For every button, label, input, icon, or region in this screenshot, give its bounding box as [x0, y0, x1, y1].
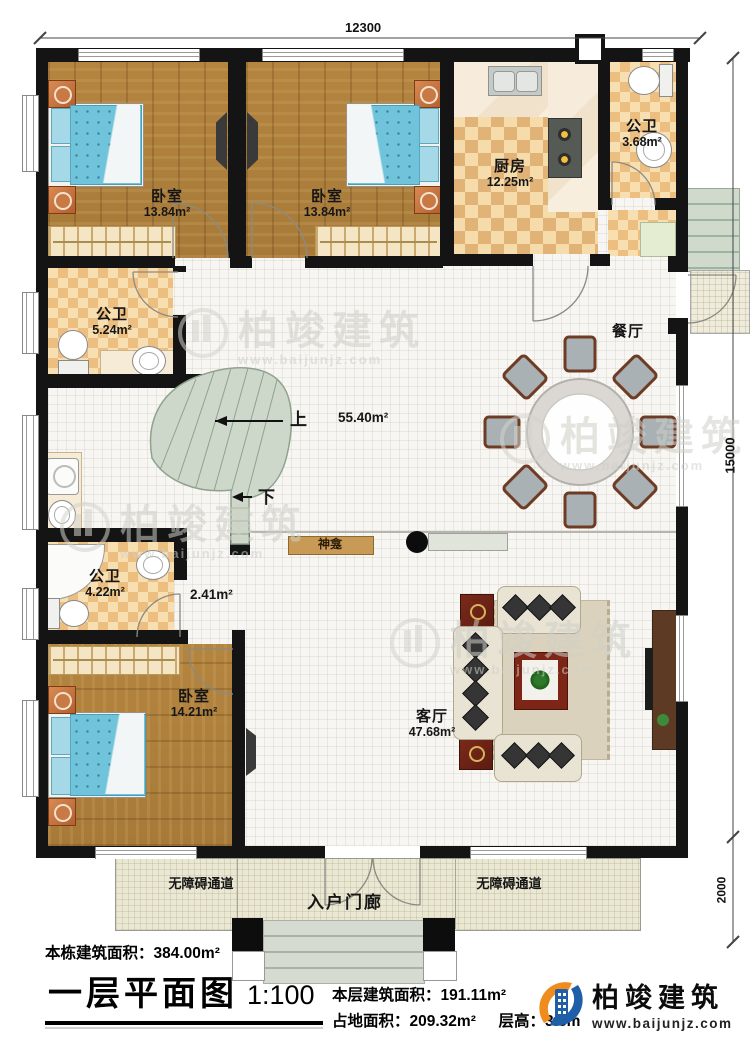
- wall: [668, 318, 688, 334]
- bay-window: [22, 588, 39, 640]
- room-area: 47.68m²: [409, 725, 456, 739]
- plant: [529, 669, 551, 691]
- side-table: [460, 594, 494, 628]
- nightstand: [48, 798, 76, 826]
- title-underline: [45, 1021, 323, 1025]
- column: [406, 531, 428, 553]
- stair-up-label: 上: [290, 410, 307, 430]
- dim-porch: 2000: [714, 877, 728, 904]
- corridor-area-label: 2.41m²: [190, 587, 233, 603]
- wall: [228, 48, 246, 258]
- porch-divider: [455, 858, 456, 929]
- wall: [305, 256, 443, 268]
- tv: [246, 728, 256, 776]
- wall: [173, 315, 186, 382]
- pillow: [51, 717, 71, 755]
- room-label-dining: 餐厅: [612, 323, 644, 340]
- room-name: 公卫: [92, 306, 132, 323]
- porch-center-label: 入户门廊: [307, 893, 383, 913]
- nightstand: [48, 686, 76, 714]
- room-name: 公卫: [622, 118, 662, 135]
- sink: [48, 500, 76, 530]
- company-logo: 柏竣建筑 www.baijunjz.com: [538, 976, 733, 1031]
- plant-small: [657, 714, 669, 726]
- room-area: 14.21m²: [171, 705, 218, 719]
- room-area: 3.68m²: [622, 135, 662, 149]
- side-landing: [690, 270, 750, 334]
- wardrobe: [48, 646, 180, 675]
- total-area-value: 384.00m²: [154, 945, 220, 962]
- bay-window: [22, 415, 39, 530]
- window: [676, 385, 688, 507]
- chimney: [575, 34, 605, 64]
- coffee-table: [514, 652, 568, 710]
- window: [470, 847, 587, 859]
- side-table: [459, 736, 493, 770]
- pillow: [51, 146, 71, 182]
- floor-area-label: 本层建筑面积：: [332, 987, 441, 1004]
- wall: [36, 256, 175, 268]
- room-name: 卧室: [304, 188, 351, 205]
- wall: [232, 644, 245, 846]
- entry-column: [232, 918, 263, 951]
- total-area-label: 本栋建筑面积：: [45, 945, 154, 962]
- bay-window: [22, 95, 39, 172]
- bed-blanket: [70, 714, 144, 794]
- washer-drum: [53, 465, 76, 488]
- wall: [655, 198, 676, 210]
- room-label-bedroom-tm: 卧室 13.84m²: [304, 188, 351, 220]
- total-area-line: 本栋建筑面积：384.00m²: [45, 941, 220, 963]
- fridge: [640, 222, 676, 257]
- window: [676, 615, 688, 702]
- nightstand: [414, 186, 442, 214]
- entry-column: [423, 918, 455, 951]
- scale-label: 1:100: [247, 980, 315, 1011]
- washing-machine: [46, 458, 79, 495]
- title-underline-light: [45, 1027, 323, 1029]
- table-detail: [470, 604, 486, 620]
- room-label-kitchen: 厨房 12.25m²: [487, 158, 534, 190]
- sink: [132, 346, 166, 376]
- bay-window: [22, 292, 39, 354]
- dim-top: 12300: [345, 20, 381, 35]
- shrine-label: 神龛: [318, 538, 342, 552]
- stair-down-label: 下: [258, 488, 275, 508]
- land-area-value: 209.32m²: [410, 1013, 476, 1030]
- wardrobe: [315, 226, 442, 259]
- room-label-bedroom-bl: 卧室 14.21m²: [171, 688, 218, 720]
- pillow: [419, 108, 439, 144]
- room-label-living: 客厅 47.68m²: [409, 708, 456, 740]
- room-area: 13.84m²: [304, 205, 351, 219]
- toilet: [46, 598, 88, 628]
- pillow: [419, 146, 439, 182]
- room-label-bath-low: 公卫 4.22m²: [85, 568, 125, 600]
- room-name: 厨房: [487, 158, 534, 175]
- burner: [558, 128, 571, 141]
- tv-cabinet: [652, 610, 678, 750]
- sink-basin: [516, 71, 538, 92]
- floor-area-value: 191.11m²: [441, 987, 507, 1004]
- entry-column-base: [423, 951, 457, 981]
- wall: [230, 256, 252, 268]
- bed-blanket: [70, 105, 140, 183]
- wall: [440, 254, 533, 266]
- pillow: [51, 108, 71, 144]
- toilet: [56, 330, 90, 375]
- sheet-title: 一层平面图: [48, 966, 238, 1015]
- wall: [590, 254, 610, 266]
- bed-blanket: [348, 105, 418, 183]
- porch-ramp-left-label: 无障碍通道: [168, 877, 233, 892]
- room-label-bedroom-tl: 卧室 13.84m²: [144, 188, 191, 220]
- nightstand: [48, 186, 76, 214]
- room-name: 客厅: [409, 708, 456, 725]
- room-area: 4.22m²: [85, 585, 125, 599]
- entry-steps: [263, 920, 425, 984]
- wall: [36, 528, 186, 542]
- wall: [173, 266, 186, 272]
- wall: [668, 256, 688, 272]
- screen-partition: [428, 533, 508, 551]
- company-logo-icon: [538, 977, 584, 1031]
- toilet: [628, 64, 672, 96]
- wall: [174, 528, 187, 580]
- kitchen-sink: [488, 66, 542, 96]
- window: [262, 49, 404, 61]
- wall: [232, 630, 245, 644]
- burner: [558, 153, 571, 166]
- wall: [36, 374, 222, 388]
- wall: [440, 48, 454, 266]
- window: [95, 847, 197, 859]
- wardrobe: [48, 226, 176, 259]
- porch-ramp-right-label: 无障碍通道: [476, 877, 541, 892]
- floor-plan-page: 神龛: [0, 0, 750, 1043]
- room-name: 卧室: [144, 188, 191, 205]
- room-area: 5.24m²: [92, 323, 132, 337]
- land-area-label: 占地面积：: [332, 1013, 410, 1030]
- window: [642, 49, 674, 61]
- room-label-bath-mid: 公卫 5.24m²: [92, 306, 132, 338]
- room-area: 13.84m²: [144, 205, 191, 219]
- tv: [645, 648, 653, 710]
- company-url: www.baijunjz.com: [592, 1016, 733, 1031]
- room-name: 公卫: [85, 568, 125, 585]
- window: [78, 49, 200, 61]
- hall-area-label: 55.40m²: [338, 410, 388, 426]
- table-detail: [469, 746, 485, 762]
- nightstand: [414, 80, 442, 108]
- wall: [598, 48, 610, 205]
- room-name: 卧室: [171, 688, 218, 705]
- sink: [136, 550, 170, 580]
- stair-wall-nub: [230, 533, 250, 555]
- pillow: [51, 757, 71, 795]
- dim-right: 15000: [723, 437, 738, 473]
- wall: [36, 630, 188, 644]
- stove: [548, 118, 582, 178]
- room-area: 12.25m²: [487, 175, 534, 189]
- room-label-bath-top: 公卫 3.68m²: [622, 118, 662, 150]
- bay-window: [22, 700, 39, 797]
- nightstand: [48, 80, 76, 108]
- floor-area-line: 本层建筑面积：191.11m²: [332, 983, 506, 1005]
- company-name: 柏竣建筑: [592, 976, 733, 1015]
- wall: [598, 198, 612, 210]
- room-name: 餐厅: [612, 323, 644, 340]
- door-opening: [676, 272, 688, 318]
- sink-basin: [493, 71, 515, 92]
